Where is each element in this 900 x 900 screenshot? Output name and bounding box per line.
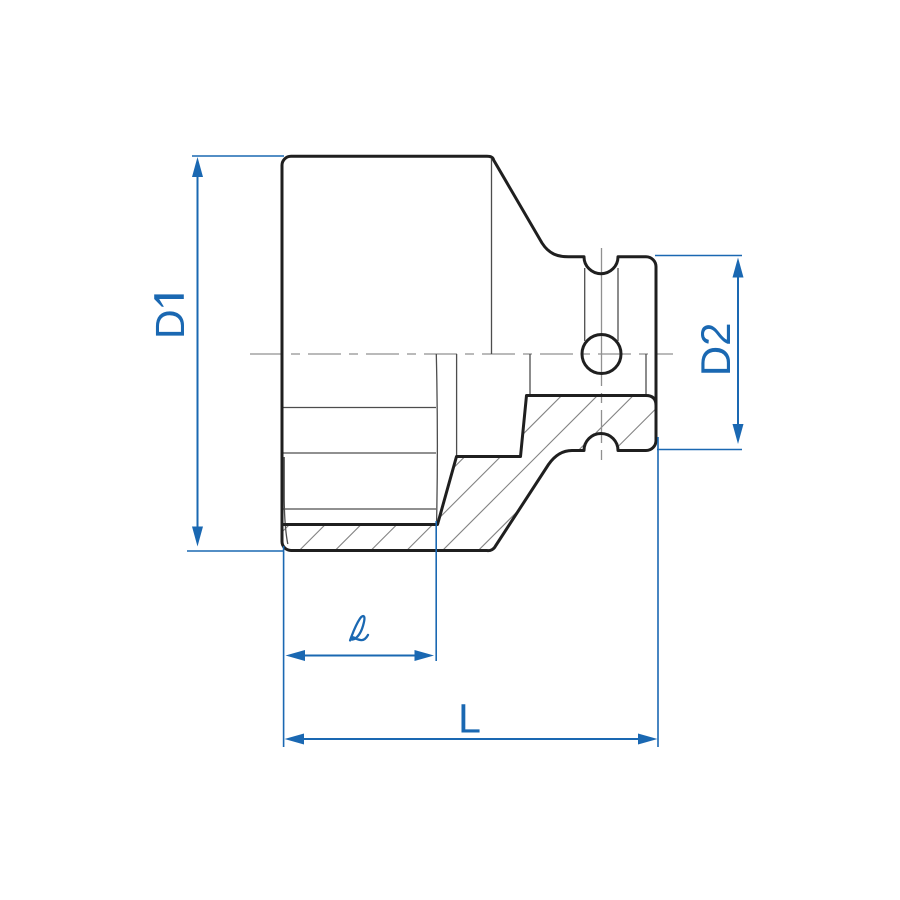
- svg-text:D2: D2: [692, 322, 739, 376]
- svg-text:L: L: [458, 696, 481, 742]
- svg-text:D: D: [147, 309, 193, 339]
